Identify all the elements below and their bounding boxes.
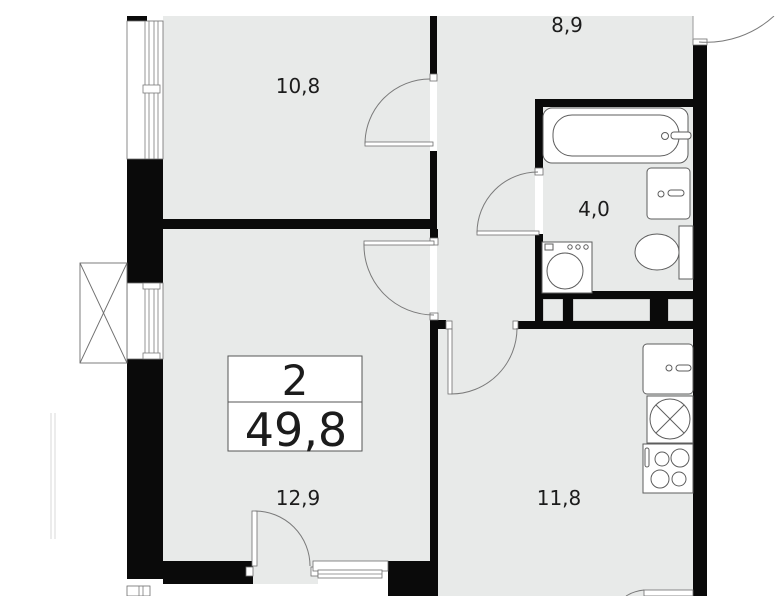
burner-1 (655, 452, 669, 466)
floor-plan: 10,8 8,9 4,0 12,9 11,8 2 49,8 (40, 16, 780, 596)
wall-bathroom-top (535, 99, 707, 107)
vent-divider-2 (563, 299, 573, 321)
wall-bathroom-left-upper (535, 99, 543, 168)
window-bedroom-transom (143, 85, 160, 93)
balcony-door-leaf (252, 511, 257, 566)
wall-living-kitchen (430, 320, 438, 596)
wall-hall-living-top (430, 229, 438, 238)
cap-balcony-door-left (246, 567, 253, 576)
burner-2 (671, 449, 689, 467)
wall-bottom-corner (388, 561, 438, 596)
kitchen-door-leaf (448, 329, 452, 394)
burner-3 (651, 470, 669, 488)
bathtub-faucet (671, 132, 691, 139)
cap-kitchen-door-right (513, 321, 518, 329)
ac-basket-icon (80, 263, 127, 363)
hallway-area-label: 8,9 (551, 16, 583, 37)
summary-badge: 2 49,8 (228, 356, 362, 457)
wash-basin-icon (647, 168, 690, 219)
vent-shaft-2 (573, 299, 650, 321)
washer-knob-2 (576, 245, 580, 249)
wall-left-top-cap (127, 16, 147, 21)
vent-divider-3 (650, 299, 668, 321)
wall-bedroom-hall-top (430, 16, 437, 74)
window-living-frame-top (143, 283, 160, 289)
washer-knob-3 (584, 245, 588, 249)
kitchen-sink-icon (643, 344, 693, 394)
cap-bedroom-door (430, 74, 437, 81)
washer-drum (547, 253, 583, 289)
wall-bedroom-hall-bottom (430, 151, 437, 219)
rooms-count-label: 2 (282, 356, 309, 405)
cap-living-door-bottom (430, 313, 438, 320)
kitchen-balcony-frame (644, 590, 693, 596)
basin-faucet (668, 190, 684, 196)
bathroom-door-leaf (477, 231, 539, 235)
burner-4 (672, 472, 686, 486)
entrance-door-arc (699, 16, 774, 42)
vent-divider-1 (535, 299, 543, 321)
bathtub-inner (553, 115, 679, 156)
hob-unit-icon (647, 396, 693, 443)
washing-machine-icon (542, 242, 592, 293)
total-area-label: 49,8 (245, 403, 347, 457)
room-bedroom (163, 16, 430, 219)
washer-panel (545, 244, 553, 250)
basin-drain (658, 191, 664, 197)
living-door-leaf (364, 241, 434, 245)
toilet-cistern (679, 226, 693, 279)
wall-kitchen-stub (438, 320, 446, 329)
bathtub-icon (543, 108, 691, 163)
bedroom-area-label: 10,8 (276, 74, 321, 98)
stove-handle (645, 448, 649, 467)
toilet-bowl (635, 234, 679, 270)
vent-shaft-1 (543, 299, 563, 321)
wall-right (693, 44, 707, 596)
wall-kitchen-top (518, 321, 707, 329)
window-living-frame-bottom (143, 353, 160, 359)
wall-left-mid (127, 159, 163, 283)
balcony-glazing-fragment (127, 586, 150, 596)
stove-icon (643, 444, 693, 493)
kitchen-area-label: 11,8 (537, 486, 582, 510)
living-area-label: 12,9 (276, 486, 321, 510)
kitchen-fixtures (643, 344, 693, 493)
bedroom-door-leaf (365, 142, 433, 146)
wall-bottom-left (163, 561, 253, 584)
cap-kitchen-door-left (446, 321, 452, 329)
window-balcony-sill (313, 561, 388, 571)
washer-knob-1 (568, 245, 572, 249)
kitchen-sink-faucet (676, 365, 691, 371)
wall-bedroom-living (163, 219, 437, 229)
cap-bathroom-door (535, 168, 543, 175)
vent-shaft-3 (668, 299, 693, 321)
wall-left-bottom (127, 359, 163, 579)
floor-plan-canvas: 10,8 8,9 4,0 12,9 11,8 2 49,8 (40, 16, 780, 596)
bathtub-drain (662, 133, 669, 140)
bathroom-area-label: 4,0 (578, 197, 610, 221)
room-corridor (437, 99, 535, 321)
balcony-door-gap (253, 561, 318, 584)
kitchen-sink-drain (666, 365, 672, 371)
